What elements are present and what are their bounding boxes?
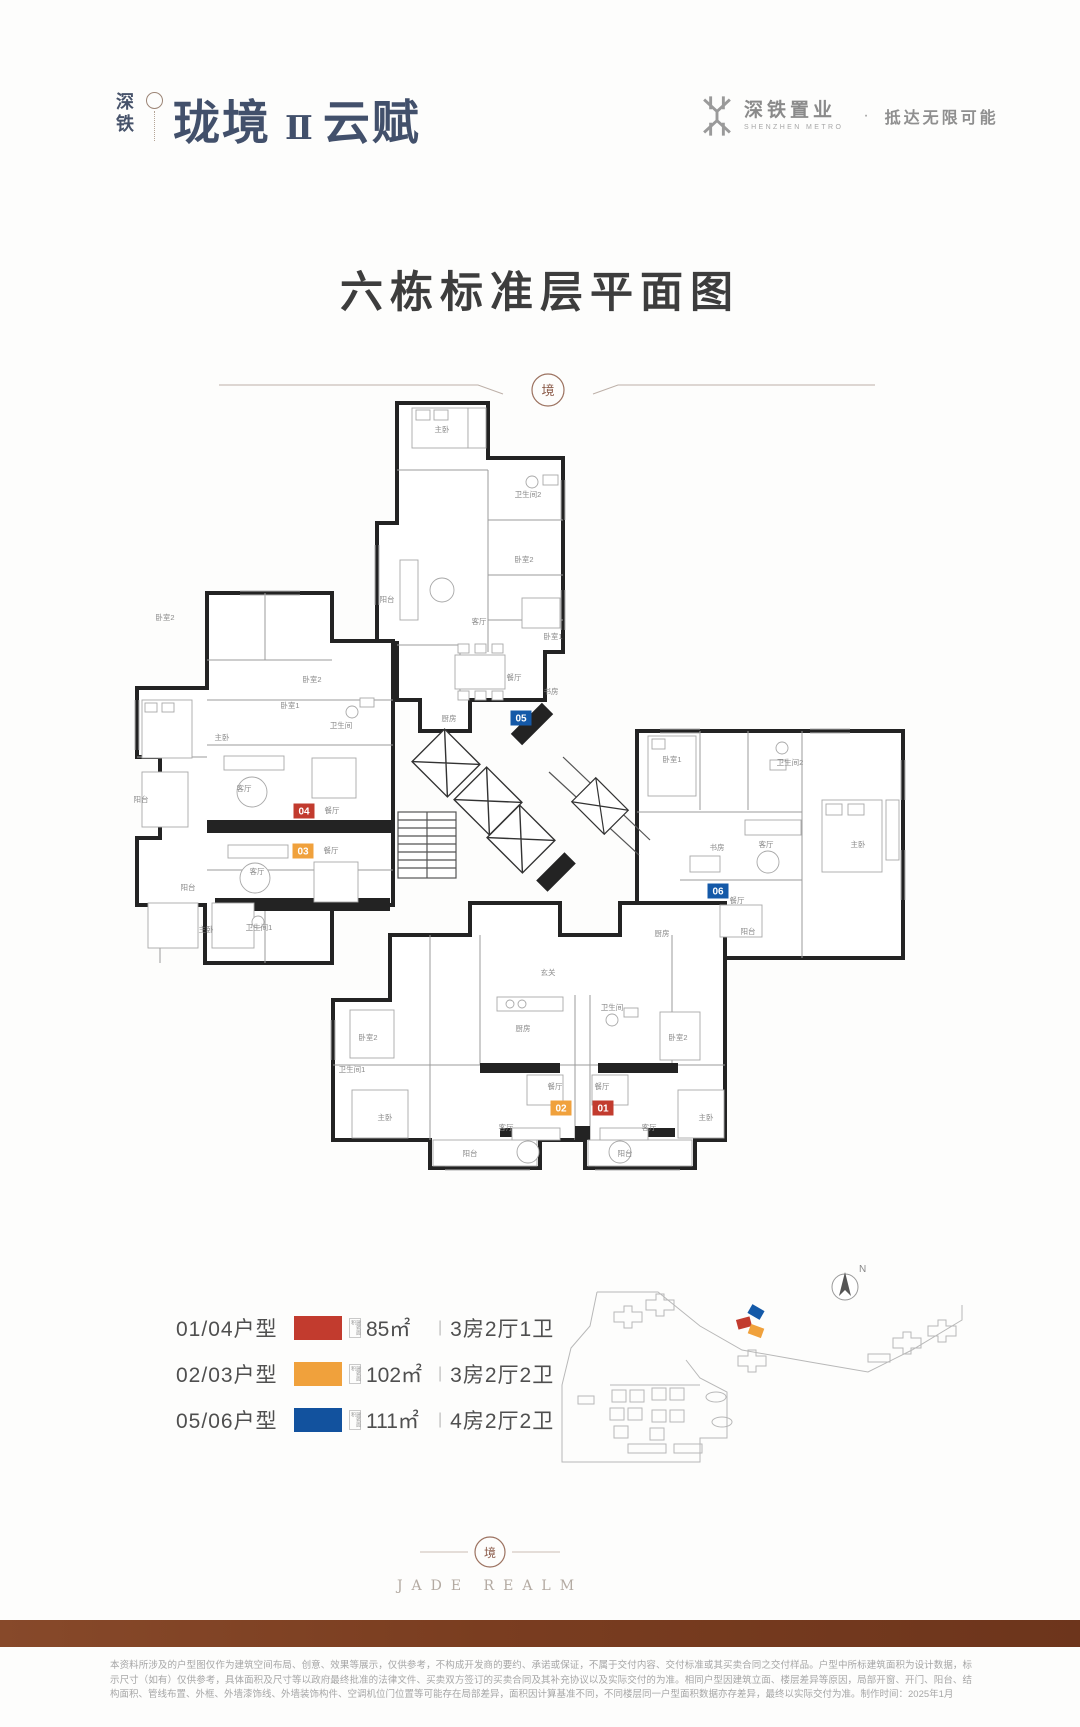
room-label: 卧室1 [662,754,681,764]
room-label: 餐厅 [325,806,340,815]
legend-row: 05/06户型 建筑面积 111㎡ | 4房2厅2卫 [176,1406,554,1433]
legend-area-value: 111㎡ [366,1405,430,1435]
unit-badge-label: 01 [597,1104,609,1115]
room-label: 餐厅 [324,846,339,855]
legend-layout-value: 4房2厅2卫 [450,1405,554,1435]
legend-area-value: 85㎡ [366,1313,430,1343]
room-label: 主卧 [435,424,450,434]
room-label: 主卧 [699,1112,714,1122]
room-label: 卫生间1 [246,922,273,932]
room-label: 厨房 [655,928,670,938]
room-label: 卧室1 [543,631,562,641]
duct-shaft-icon [572,778,629,835]
unit-badge-label: 05 [515,714,527,725]
compass-icon: N [832,1264,866,1300]
unit-badge-label: 04 [298,807,310,818]
unit-badge-label: 06 [712,887,724,898]
room-label: 书房 [544,686,559,696]
room-label: 阳台 [618,1148,633,1158]
legend-layout-value: 3房2厅1卫 [450,1313,554,1343]
legend-divider: | [438,1365,442,1383]
poster-page: 深铁 珑境 Ⅱ 云赋 深铁置业 SHENZHEN METRO · 抵达无限可能 … [0,0,1080,1727]
room-label: 主卧 [851,839,866,849]
room-label: 玄关 [541,967,556,977]
room-label: 餐厅 [730,896,745,905]
room-label: 卧室1 [280,700,299,710]
legend-units-label: 01/04户型 [176,1313,288,1343]
legend-row: 01/04户型 建筑面积 85㎡ | 3房2厅1卫 [176,1314,554,1341]
unit-legend: 01/04户型 建筑面积 85㎡ | 3房2厅1卫 02/03户型 建筑面积 1… [176,1314,554,1452]
siteplan: N [562,1264,962,1462]
room-label: 阳台 [463,1148,478,1158]
title-divider: 境 [219,374,875,406]
legend-units-label: 02/03户型 [176,1359,288,1389]
room-label: 厨房 [442,713,457,723]
room-label: 客厅 [250,866,265,876]
room-label: 卫生间2 [777,757,804,767]
footer-brown-bar [0,1620,1080,1647]
siteplan-highlight-building [747,1304,764,1320]
legend-color-swatch [294,1316,342,1340]
legend-area-note: 建筑面积 [349,1410,361,1430]
room-label: 卧室2 [668,1032,687,1042]
room-label: 客厅 [472,616,487,626]
siteplan-highlight [736,1304,765,1338]
legend-units-label: 05/06户型 [176,1405,288,1435]
legend-area-note: 建筑面积 [349,1364,361,1384]
room-label: 阳台 [380,594,395,604]
room-label: 卧室2 [155,612,174,622]
footer-seal: 境 [420,1537,560,1567]
legend-area-note: 建筑面积 [349,1318,361,1338]
room-label: 餐厅 [548,1082,563,1091]
room-label: 卫生间2 [515,489,542,499]
footer-seal-char: 境 [484,1545,496,1560]
legend-color-swatch [294,1408,342,1432]
footer-brand-en: JADE REALM [290,1578,690,1594]
siteplan-outline [562,1292,962,1462]
room-label: 卧室2 [514,554,533,564]
room-label: 阳台 [181,882,196,892]
room-label: 卫生间1 [339,1064,366,1074]
room-label: 厨房 [516,1023,531,1033]
legend-color-swatch [294,1362,342,1386]
disclaimer-text: 本资料所涉及的户型图仅作为建筑空间布局、创意、效果等展示，仅供参考，不构成开发商… [110,1659,972,1703]
siteplan-buildings [578,1294,956,1453]
elevator-core [398,729,650,878]
floorplan: 050403060201 主卧卫生间2卧室2阳台客厅卧室1餐厅书房厨房卧室2卧室… [134,403,906,1170]
room-label: 卧室2 [358,1032,377,1042]
room-label: 卧室2 [302,674,321,684]
room-label: 客厅 [237,783,252,793]
room-label: 阳台 [134,794,149,804]
legend-divider: | [438,1319,442,1337]
compass-north-label: N [859,1264,866,1275]
room-label: 餐厅 [507,673,522,682]
unit-badge-label: 02 [555,1104,567,1115]
floorplan-canvas: 境 [0,0,1080,1727]
legend-layout-value: 3房2厅2卫 [450,1359,554,1389]
legend-row: 02/03户型 建筑面积 102㎡ | 3房2厅2卫 [176,1360,554,1387]
room-label: 主卧 [215,732,230,742]
room-label: 主卧 [199,924,214,934]
room-label: 客厅 [759,839,774,849]
room-label: 客厅 [642,1122,657,1132]
room-label: 主卧 [378,1112,393,1122]
room-label: 餐厅 [595,1082,610,1091]
divider-seal-char: 境 [541,384,554,399]
room-label: 卫生间 [330,720,353,730]
room-label: 客厅 [499,1122,514,1132]
room-label: 卫生间 [601,1002,624,1012]
legend-area-value: 102㎡ [366,1359,430,1389]
room-label: 阳台 [741,926,756,936]
unit-badge-label: 03 [297,847,309,858]
room-label: 书房 [710,842,725,852]
siteplan-highlight-building [736,1316,752,1329]
legend-divider: | [438,1411,442,1429]
